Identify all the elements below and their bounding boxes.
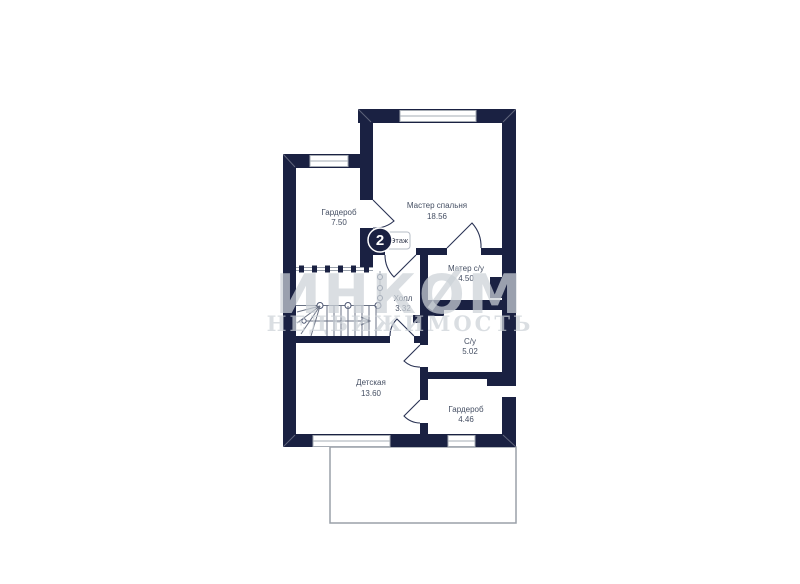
door-wardrobe-bottom bbox=[404, 400, 420, 423]
floor-badge: Этаж 2 bbox=[368, 228, 410, 252]
room-area: 5.02 bbox=[462, 347, 478, 356]
room-area: 18.56 bbox=[427, 212, 448, 221]
room-area: 4.46 bbox=[458, 415, 474, 424]
room-label-bathroom: С/у 5.02 bbox=[462, 337, 478, 356]
room-name: Гардероб bbox=[321, 208, 357, 217]
floorplan-page: Гардероб 7.50 Мастер спальня 18.56 Матер… bbox=[0, 0, 800, 584]
window-master bbox=[400, 111, 476, 122]
room-name: Мастер спальня bbox=[407, 201, 467, 210]
room-area: 7.50 bbox=[331, 218, 347, 227]
window-wardrobe-bottom bbox=[448, 436, 475, 447]
door-wardrobe-master bbox=[373, 200, 394, 228]
window-nursery bbox=[313, 436, 390, 447]
room-name: Гардероб bbox=[448, 405, 484, 414]
floorplan-drawing: Гардероб 7.50 Мастер спальня 18.56 Матер… bbox=[0, 0, 800, 584]
watermark: ИНКОМ НЕДВИЖИМОСТЬ bbox=[267, 263, 534, 336]
watermark-subtitle: НЕДВИЖИМОСТЬ bbox=[267, 311, 534, 336]
floor-badge-number: 2 bbox=[376, 232, 384, 249]
room-area: 13.60 bbox=[361, 389, 382, 398]
room-label-nursery: Детская 13.60 bbox=[356, 378, 386, 398]
window-wardrobe-left bbox=[310, 156, 348, 167]
door-master-bath bbox=[447, 223, 481, 248]
room-label-wardrobe-bottom: Гардероб 4.46 bbox=[448, 405, 484, 424]
door-bathroom bbox=[404, 345, 420, 367]
room-label-wardrobe-left: Гардероб 7.50 bbox=[321, 208, 357, 227]
room-name: Детская bbox=[356, 378, 386, 387]
lower-roof-outline bbox=[330, 447, 516, 523]
room-label-master-bedroom: Мастер спальня 18.56 bbox=[407, 201, 467, 221]
room-name: С/у bbox=[464, 337, 476, 346]
